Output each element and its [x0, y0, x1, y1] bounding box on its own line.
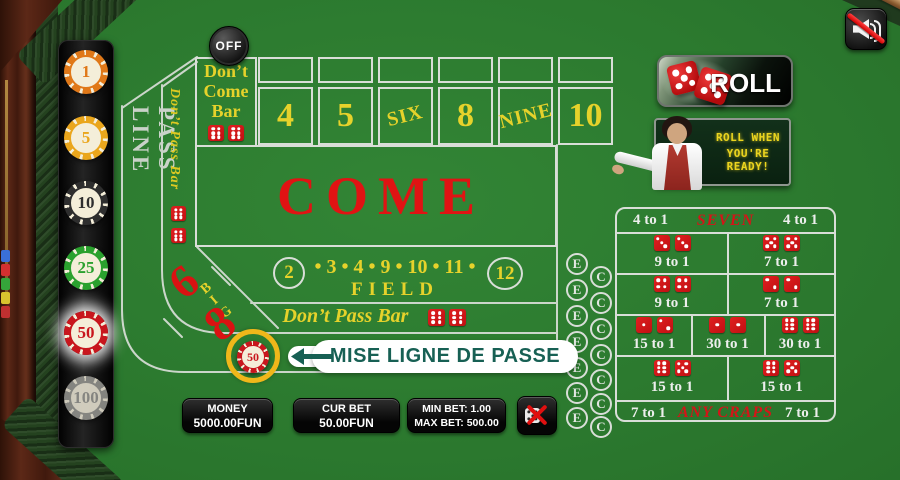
chip-1[interactable]: 1: [64, 50, 108, 94]
die-icon: [784, 360, 800, 376]
dont-pass-side-dice: [171, 206, 186, 248]
money-display: MONEY 5000.00FUN: [182, 398, 273, 433]
dont-come-bar-box[interactable]: Don’t Come Bar: [195, 57, 257, 147]
current-bet-display: CUR BET 50.00FUN: [293, 398, 400, 433]
die-icon: [654, 276, 670, 292]
twelve-bet[interactable]: 30 to 1: [764, 314, 836, 355]
die-icon: [675, 360, 691, 376]
place-box-label: 4: [277, 97, 294, 135]
come-point-box-9[interactable]: [498, 57, 553, 83]
chip-5[interactable]: 5: [64, 116, 108, 160]
off-puck-label: OFF: [216, 39, 243, 53]
chip-25[interactable]: 25: [64, 246, 108, 290]
clear-bets-button[interactable]: [517, 396, 557, 435]
aces-bet[interactable]: 30 to 1: [691, 314, 764, 355]
pass-line-bet-callout: MISE LIGNE DE PASSE: [312, 340, 578, 373]
craps-bet-circle[interactable]: C: [590, 318, 612, 340]
eleven-bet-right[interactable]: 15 to 1: [727, 355, 836, 400]
craps-table: OFF PASS LINE Don’t Pass Bar Don’t Come …: [0, 0, 900, 480]
field-12-circle: 12: [487, 257, 523, 290]
any-craps-odds-right: 7 to 1: [785, 405, 820, 422]
die-icon: [171, 206, 186, 221]
die-icon: [784, 276, 800, 292]
off-puck: OFF: [209, 26, 249, 66]
place-box-label: 8: [457, 97, 474, 135]
field-2-circle: 2: [273, 257, 305, 289]
die-icon: [171, 228, 186, 243]
dealer-figure: [612, 116, 704, 190]
chip-50-selected[interactable]: 50: [64, 311, 108, 355]
field-numbers: • 3 • 4 • 9 • 10 • 11 •: [305, 256, 485, 279]
come-point-box-10[interactable]: [558, 57, 613, 83]
come-bet-area[interactable]: COME: [195, 145, 557, 247]
die-icon: [782, 317, 798, 333]
hard-six-bet[interactable]: 9 to 1: [617, 232, 727, 273]
come-point-box-6[interactable]: [378, 57, 433, 83]
dont-pass-bar-vertical-label: Don’t Pass Bar: [166, 88, 182, 192]
bet-limits-display: MIN BET: 1.00 MAX BET: 500.00: [407, 398, 506, 433]
craps-bet-circle[interactable]: C: [590, 416, 612, 438]
odds-label: 9 to 1: [655, 254, 690, 271]
dont-pass-bar-dice: [428, 309, 466, 326]
die-icon: [675, 235, 691, 251]
seven-odds-left: 4 to 1: [633, 212, 668, 229]
eleven-bet-left[interactable]: 15 to 1: [617, 355, 727, 400]
die-icon: [763, 276, 779, 292]
come-point-box-4[interactable]: [258, 57, 313, 83]
place-box-label: 5: [337, 97, 354, 135]
hard-eight-bet[interactable]: 9 to 1: [617, 273, 727, 314]
die-icon: [449, 309, 466, 326]
craps-bet-circle[interactable]: C: [590, 369, 612, 391]
any-craps-bet[interactable]: 7 to 1 ANY CRAPS 7 to 1: [617, 402, 834, 424]
odds-label: 7 to 1: [764, 295, 799, 312]
place-box-label: NINE: [497, 98, 555, 133]
die-icon: [228, 125, 244, 141]
odds-label: 9 to 1: [655, 295, 690, 312]
money-label: MONEY: [207, 402, 247, 416]
craps-bet-circle[interactable]: C: [590, 266, 612, 288]
hard-four-bet[interactable]: 7 to 1: [727, 273, 836, 314]
cur-bet-label: CUR BET: [322, 402, 371, 416]
dealer-message: ROLL WHEN YOU'RE READY!: [706, 120, 790, 184]
die-icon: [654, 235, 670, 251]
come-point-box-5[interactable]: [318, 57, 373, 83]
die-icon: [763, 360, 779, 376]
eleven-bet-circle[interactable]: E: [566, 305, 588, 327]
die-icon: [784, 235, 800, 251]
eleven-bet-circle[interactable]: E: [566, 407, 588, 429]
die-icon: [636, 317, 652, 333]
die-icon: [208, 125, 224, 141]
craps-bet-circle[interactable]: C: [590, 292, 612, 314]
eleven-bet-circle[interactable]: E: [566, 253, 588, 275]
place-box-nine[interactable]: NINE: [498, 87, 553, 145]
craps-bet-circle[interactable]: C: [590, 393, 612, 415]
seven-bet-row[interactable]: 4 to 1 SEVEN 4 to 1: [617, 209, 834, 232]
place-box-8[interactable]: 8: [438, 87, 493, 145]
odds-label: 15 to 1: [633, 336, 676, 353]
die-icon: [428, 309, 445, 326]
odds-label: 15 to 1: [760, 379, 803, 396]
die-icon: [654, 360, 670, 376]
min-bet-label: MIN BET: 1.00: [422, 402, 491, 416]
hard-ten-bet[interactable]: 7 to 1: [727, 232, 836, 273]
dont-come-dice: [197, 125, 255, 141]
seven-label: SEVEN: [697, 212, 754, 230]
proposition-bets-panel: 4 to 1 SEVEN 4 to 1 9 to 1 7 to 1 9 to 1…: [615, 207, 836, 422]
mute-button[interactable]: [845, 8, 887, 50]
seven-odds-right: 4 to 1: [783, 212, 818, 229]
eleven-bet-circle[interactable]: E: [566, 382, 588, 404]
place-box-six[interactable]: SIX: [378, 87, 433, 145]
die-icon: [675, 276, 691, 292]
odds-label: 30 to 1: [779, 336, 822, 353]
three-bet[interactable]: 15 to 1: [617, 314, 691, 355]
die-icon: [803, 317, 819, 333]
odds-label: 30 to 1: [706, 336, 749, 353]
chip-10[interactable]: 10: [64, 181, 108, 225]
place-box-label: 10: [569, 97, 603, 135]
die-icon: [763, 235, 779, 251]
callout-arrow: [302, 354, 332, 359]
money-value: 5000.00FUN: [193, 416, 261, 430]
cur-bet-value: 50.00FUN: [319, 416, 374, 430]
any-craps-odds-left: 7 to 1: [631, 405, 666, 422]
die-icon: [709, 317, 725, 333]
dealer-face: [667, 123, 687, 144]
place-box-4[interactable]: 4: [258, 87, 313, 145]
craps-bet-circle[interactable]: C: [590, 344, 612, 366]
field-label: FIELD: [305, 279, 485, 301]
eleven-bet-circle[interactable]: E: [566, 279, 588, 301]
place-box-5[interactable]: 5: [318, 87, 373, 145]
dont-come-bar-label: Don’t Come Bar: [197, 61, 255, 121]
die-icon: [657, 317, 673, 333]
place-box-label: SIX: [385, 100, 426, 131]
roll-button[interactable]: ROLL: [657, 55, 793, 107]
chip-100[interactable]: 100: [64, 376, 108, 420]
come-point-box-8[interactable]: [438, 57, 493, 83]
roll-button-label: ROLL: [710, 68, 781, 99]
odds-label: 7 to 1: [764, 254, 799, 271]
bet-highlight-ring: [226, 329, 280, 383]
max-bet-label: MAX BET: 500.00: [414, 416, 499, 430]
dont-pass-bar-label: Don’t Pass Bar: [268, 305, 423, 328]
dealer-hand: [611, 163, 625, 176]
come-label: COME: [267, 165, 485, 227]
odds-label: 15 to 1: [651, 379, 694, 396]
place-box-10[interactable]: 10: [558, 87, 613, 145]
any-craps-label: ANY CRAPS: [678, 404, 773, 422]
die-icon: [730, 317, 746, 333]
